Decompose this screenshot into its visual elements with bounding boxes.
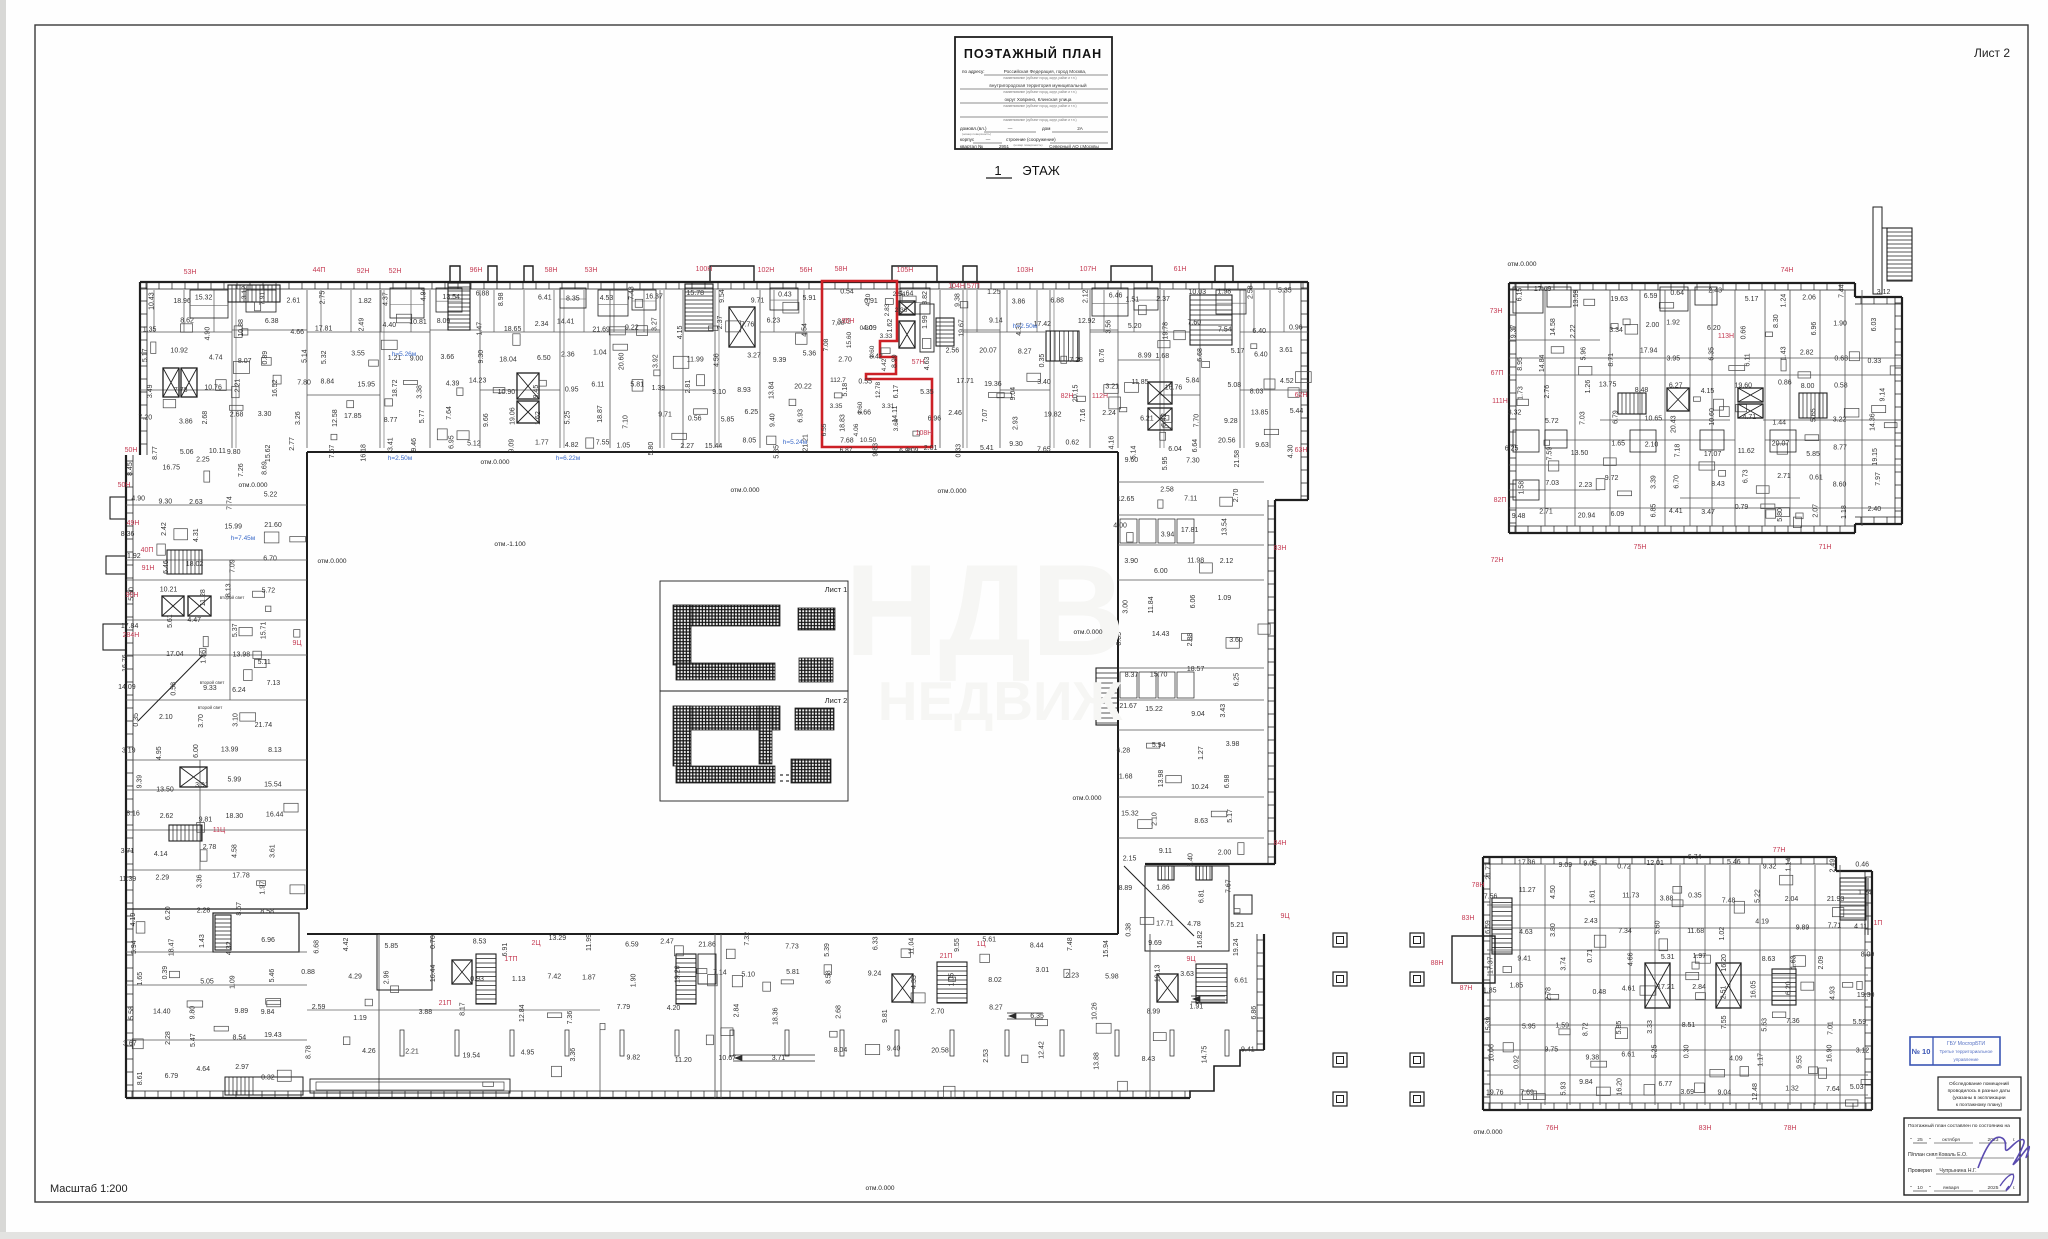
svg-text:2.10: 2.10 [1151, 812, 1158, 826]
svg-text:17.36: 17.36 [1518, 859, 1536, 866]
svg-text:1.87: 1.87 [582, 975, 596, 982]
svg-text:5.44: 5.44 [1290, 408, 1304, 415]
svg-text:3.35: 3.35 [830, 403, 843, 410]
svg-text:7.03: 7.03 [1580, 411, 1587, 425]
svg-text:6.96: 6.96 [928, 416, 942, 423]
svg-text:7.28: 7.28 [1069, 357, 1083, 364]
svg-text:3.61: 3.61 [1279, 347, 1293, 354]
svg-text:2.96: 2.96 [383, 970, 390, 984]
svg-text:0.89: 0.89 [262, 351, 269, 365]
svg-text:7.67: 7.67 [1226, 879, 1233, 893]
svg-text:внутригородская территория мун: внутригородская территория муниципальный [989, 82, 1087, 88]
svg-text:4.94: 4.94 [421, 287, 428, 301]
svg-text:8.77: 8.77 [1833, 445, 1847, 452]
svg-text:8.04: 8.04 [834, 1047, 848, 1054]
svg-text:8.62: 8.62 [180, 318, 194, 325]
svg-text:17.78: 17.78 [232, 872, 250, 879]
svg-text:21.77: 21.77 [1486, 862, 1493, 880]
svg-text:": " [1910, 1185, 1912, 1191]
svg-text:1.63: 1.63 [1791, 955, 1798, 969]
svg-text:9.81: 9.81 [882, 1009, 889, 1023]
svg-text:управление: управление [1953, 1057, 1979, 1062]
svg-text:10.60: 10.60 [1709, 408, 1716, 426]
svg-text:4.90: 4.90 [131, 496, 145, 503]
svg-text:14.43: 14.43 [1152, 631, 1170, 638]
svg-text:63Н: 63Н [1295, 447, 1308, 454]
svg-text:21.93: 21.93 [1827, 896, 1845, 903]
svg-text:5.59: 5.59 [1853, 1019, 1867, 1026]
svg-text:44П: 44П [313, 267, 326, 274]
svg-text:56Н: 56Н [800, 267, 813, 274]
svg-text:8.99: 8.99 [892, 354, 899, 368]
svg-text:0.35: 0.35 [1688, 893, 1702, 900]
svg-text:0.61: 0.61 [1809, 475, 1823, 482]
svg-text:8.99: 8.99 [1138, 353, 1152, 360]
svg-text:9.32: 9.32 [1763, 863, 1777, 870]
svg-text:21.74: 21.74 [255, 722, 273, 729]
svg-text:h=2.50м: h=2.50м [388, 455, 413, 462]
svg-text:20.22: 20.22 [794, 384, 812, 391]
svg-text:1.44: 1.44 [1772, 419, 1786, 426]
svg-text:2.36: 2.36 [895, 307, 908, 314]
svg-text:8.93: 8.93 [737, 387, 751, 394]
svg-text:9Ц: 9Ц [1186, 956, 1196, 963]
svg-text:5.85: 5.85 [773, 445, 780, 459]
svg-text:7.55: 7.55 [596, 440, 610, 447]
svg-text:8.51: 8.51 [1682, 1022, 1696, 1029]
svg-text:1.68: 1.68 [1119, 773, 1133, 780]
svg-text:2.15: 2.15 [1123, 856, 1137, 863]
svg-text:": " [1929, 1185, 1931, 1191]
svg-text:4.64: 4.64 [196, 1066, 210, 1073]
svg-text:15.94: 15.94 [1103, 940, 1110, 958]
svg-text:9.04: 9.04 [1010, 387, 1017, 401]
svg-text:3.19: 3.19 [122, 748, 136, 755]
svg-text:12.42: 12.42 [1038, 1041, 1045, 1059]
svg-text:19.78: 19.78 [1163, 322, 1170, 340]
svg-text:8.16: 8.16 [126, 811, 140, 818]
svg-text:0.35: 0.35 [1039, 354, 1046, 368]
svg-text:отм.0.000: отм.0.000 [239, 482, 268, 489]
svg-text:11.68: 11.68 [1687, 928, 1704, 935]
svg-text:6.55: 6.55 [821, 423, 828, 436]
svg-text:6.46: 6.46 [1109, 293, 1123, 300]
svg-text:91Н: 91Н [142, 565, 155, 572]
svg-text:6.66: 6.66 [857, 410, 871, 417]
svg-text:1Ц: 1Ц [976, 941, 986, 948]
svg-text:1.65: 1.65 [137, 972, 144, 986]
svg-text:3.26: 3.26 [295, 411, 302, 425]
svg-text:ПОЭТАЖНЫЙ ПЛАН: ПОЭТАЖНЫЙ ПЛАН [964, 46, 1102, 61]
svg-text:отм.0.000: отм.0.000 [481, 459, 510, 466]
svg-text:4.00: 4.00 [1113, 522, 1127, 529]
svg-text:h=2.50м: h=2.50м [1013, 323, 1038, 330]
svg-text:1.24: 1.24 [1781, 294, 1788, 308]
svg-text:6.93: 6.93 [797, 409, 804, 423]
svg-text:16.18: 16.18 [361, 444, 368, 462]
svg-text:7.57: 7.57 [329, 445, 336, 459]
svg-text:2.47: 2.47 [660, 939, 674, 946]
svg-text:17.69: 17.69 [1534, 286, 1552, 293]
svg-text:": " [1910, 1137, 1912, 1143]
svg-text:7.78: 7.78 [174, 387, 188, 394]
svg-text:3.32: 3.32 [1508, 410, 1522, 417]
svg-text:0.88: 0.88 [301, 969, 315, 976]
svg-text:1.25: 1.25 [987, 289, 1001, 296]
svg-text:h=5.26м: h=5.26м [392, 351, 417, 358]
svg-text:10.26: 10.26 [1091, 1002, 1098, 1020]
svg-text:1.82: 1.82 [358, 298, 372, 305]
svg-text:9Ц: 9Ц [292, 640, 302, 647]
svg-text:6.06: 6.06 [1190, 595, 1197, 609]
svg-text:6.23: 6.23 [767, 318, 781, 325]
svg-text:10.21: 10.21 [160, 586, 178, 593]
svg-text:13.98: 13.98 [233, 652, 251, 659]
svg-text:": " [1929, 1137, 1931, 1143]
svg-text:67П: 67П [1491, 370, 1504, 377]
svg-text:10.03: 10.03 [1189, 289, 1207, 296]
svg-text:11.85: 11.85 [1132, 379, 1149, 386]
svg-text:4.31: 4.31 [193, 528, 200, 542]
svg-text:6.21: 6.21 [1140, 415, 1154, 422]
svg-text:0.32: 0.32 [261, 1074, 275, 1081]
svg-text:9.84: 9.84 [261, 1009, 275, 1016]
svg-text:5.31: 5.31 [1661, 954, 1675, 961]
svg-text:5.80: 5.80 [1777, 508, 1784, 522]
svg-text:9.60: 9.60 [1125, 457, 1139, 464]
svg-text:4.14: 4.14 [154, 851, 168, 858]
svg-text:2.28: 2.28 [165, 1031, 172, 1045]
svg-text:6.61: 6.61 [1621, 1051, 1635, 1058]
svg-text:0.58: 0.58 [170, 682, 177, 696]
svg-text:Поэтажный план составлен по со: Поэтажный план составлен по состоянию на [1908, 1122, 2010, 1129]
svg-text:5.35: 5.35 [920, 389, 934, 396]
svg-text:5.96: 5.96 [1581, 347, 1588, 361]
svg-text:8.13: 8.13 [225, 583, 232, 597]
svg-text:9.30: 9.30 [478, 350, 485, 364]
svg-text:7.44: 7.44 [1838, 284, 1845, 298]
svg-text:3.40: 3.40 [1037, 379, 1051, 386]
svg-text:2.51: 2.51 [1721, 985, 1728, 999]
svg-text:наименование (субъект город, о: наименование (субъект город, округ, райо… [1003, 90, 1076, 94]
svg-text:1.51: 1.51 [1125, 296, 1139, 303]
svg-text:3.21: 3.21 [1105, 384, 1119, 391]
svg-text:3.47: 3.47 [1701, 509, 1715, 516]
svg-text:20.15: 20.15 [1073, 384, 1080, 402]
svg-text:12.01: 12.01 [1646, 860, 1664, 867]
svg-text:90Н: 90Н [126, 592, 139, 599]
svg-text:2.93: 2.93 [1013, 416, 1020, 430]
svg-text:16.76: 16.76 [122, 654, 129, 672]
svg-text:Обследование помещений: Обследование помещений [1949, 1080, 2009, 1087]
svg-text:11.99: 11.99 [586, 934, 593, 951]
svg-text:наименование (субъект город, о: наименование (субъект город, округ, райо… [1003, 118, 1076, 122]
svg-text:5.05: 5.05 [200, 979, 214, 986]
svg-text:4.47: 4.47 [187, 617, 201, 624]
svg-text:2.61: 2.61 [286, 298, 300, 305]
svg-text:8.05: 8.05 [742, 438, 756, 445]
svg-text:0.54: 0.54 [840, 288, 854, 295]
svg-text:13.29: 13.29 [549, 935, 567, 942]
svg-text:25: 25 [1917, 1137, 1923, 1143]
svg-text:1.92: 1.92 [127, 553, 141, 560]
svg-text:2.12: 2.12 [1220, 558, 1234, 565]
svg-text:7.10: 7.10 [622, 415, 629, 429]
svg-text:2.59: 2.59 [312, 1004, 326, 1011]
svg-text:7.55: 7.55 [1721, 1015, 1728, 1029]
svg-text:октября: октября [1942, 1137, 1960, 1143]
svg-text:7.74: 7.74 [226, 496, 233, 510]
svg-text:2.34: 2.34 [535, 321, 549, 328]
svg-text:1.59: 1.59 [1555, 1022, 1569, 1029]
svg-text:18.30: 18.30 [226, 813, 244, 820]
svg-text:7.01: 7.01 [1828, 1021, 1835, 1035]
svg-text:19.82: 19.82 [1044, 412, 1062, 419]
svg-text:1.39: 1.39 [652, 385, 666, 392]
svg-text:5.85: 5.85 [1806, 451, 1820, 458]
svg-text:6.00: 6.00 [193, 744, 200, 758]
svg-text:1.18: 1.18 [1841, 505, 1848, 519]
svg-text:17.81: 17.81 [1181, 527, 1199, 534]
svg-text:6.00: 6.00 [1154, 568, 1168, 575]
svg-text:0.91: 0.91 [864, 298, 878, 305]
svg-text:по адресу:: по адресу: [962, 69, 985, 74]
svg-text:9.41: 9.41 [1517, 955, 1531, 962]
svg-text:14.09: 14.09 [118, 684, 136, 691]
svg-text:3.71: 3.71 [121, 848, 135, 855]
svg-text:17.37: 17.37 [1488, 956, 1495, 974]
svg-text:дом: дом [1042, 126, 1050, 131]
svg-text:3.63: 3.63 [1180, 971, 1194, 978]
svg-text:5.95: 5.95 [1162, 456, 1169, 470]
svg-text:0.71: 0.71 [1587, 949, 1594, 963]
svg-text:7.48: 7.48 [1722, 897, 1736, 904]
svg-text:18.02: 18.02 [186, 561, 204, 568]
svg-text:1.47: 1.47 [476, 322, 483, 336]
svg-text:6.96: 6.96 [261, 937, 275, 944]
svg-text:6.27: 6.27 [1669, 382, 1683, 389]
svg-text:6.59: 6.59 [1644, 293, 1658, 300]
svg-text:19.67: 19.67 [958, 319, 965, 337]
svg-text:наименование (субъект город, о: наименование (субъект город, округ, райо… [1003, 76, 1076, 80]
svg-text:9.72: 9.72 [1605, 475, 1619, 482]
svg-text:5.94: 5.94 [131, 940, 138, 954]
svg-text:9.09: 9.09 [1558, 862, 1572, 869]
svg-text:11Ц: 11Ц [213, 827, 226, 834]
svg-text:21.86: 21.86 [698, 941, 716, 948]
svg-text:5.25: 5.25 [1652, 1044, 1659, 1058]
svg-text:5.10: 5.10 [741, 972, 755, 979]
svg-text:3.66: 3.66 [440, 354, 454, 361]
svg-text:7.20: 7.20 [138, 414, 152, 421]
svg-text:4.50: 4.50 [1550, 885, 1557, 899]
svg-text:3.86: 3.86 [1012, 298, 1026, 305]
svg-text:4.19: 4.19 [1755, 918, 1769, 925]
svg-text:2.40: 2.40 [1868, 506, 1882, 513]
svg-text:9.41: 9.41 [1241, 1047, 1255, 1054]
svg-text:9.55: 9.55 [1796, 1055, 1803, 1069]
svg-text:8.09: 8.09 [437, 318, 451, 325]
svg-text:9.40: 9.40 [769, 413, 776, 427]
svg-text:21.60: 21.60 [264, 522, 282, 529]
svg-text:1.13: 1.13 [512, 976, 526, 983]
svg-text:6.20: 6.20 [1707, 325, 1721, 332]
svg-text:4.32: 4.32 [226, 941, 233, 955]
svg-text:12.48: 12.48 [1752, 1083, 1759, 1101]
svg-text:5.46: 5.46 [269, 969, 276, 983]
svg-text:104Н 57П: 104Н 57П [948, 283, 980, 290]
svg-text:2.46: 2.46 [948, 410, 962, 417]
svg-text:домовл.(вл.): домовл.(вл.) [960, 126, 987, 131]
svg-text:2.29: 2.29 [155, 875, 169, 882]
svg-text:4.15: 4.15 [1701, 388, 1715, 395]
svg-text:50Н: 50Н [125, 447, 138, 454]
svg-text:8.63: 8.63 [1194, 818, 1208, 825]
svg-text:10.92: 10.92 [170, 348, 188, 355]
svg-text:h=6.22м: h=6.22м [556, 455, 581, 462]
svg-text:5.20: 5.20 [1128, 323, 1142, 330]
svg-text:1.99: 1.99 [922, 315, 929, 329]
svg-text:5.84: 5.84 [1186, 378, 1200, 385]
svg-text:16.44: 16.44 [266, 811, 284, 818]
svg-text:0.48: 0.48 [1592, 989, 1606, 996]
svg-text:4.11: 4.11 [1854, 924, 1867, 931]
svg-text:0.33: 0.33 [956, 444, 963, 458]
svg-text:14.58: 14.58 [1550, 318, 1557, 336]
svg-text:9.09: 9.09 [508, 439, 515, 453]
svg-text:6.40: 6.40 [1187, 853, 1194, 867]
svg-text:5.22: 5.22 [264, 491, 278, 498]
svg-text:1.26: 1.26 [1585, 380, 1592, 394]
svg-text:74Н: 74Н [1781, 267, 1794, 274]
svg-text:7.73: 7.73 [785, 944, 799, 951]
svg-text:5.08: 5.08 [1227, 382, 1241, 389]
svg-text:1П: 1П [1874, 920, 1883, 927]
svg-text:отм.0.000: отм.0.000 [938, 488, 967, 495]
svg-text:Лист 2: Лист 2 [1974, 46, 2010, 60]
svg-text:h=7.45м: h=7.45м [231, 535, 256, 542]
svg-text:3.22: 3.22 [1833, 416, 1847, 423]
svg-text:НДВ: НДВ [845, 537, 1125, 683]
svg-text:13.85: 13.85 [1251, 409, 1269, 416]
svg-text:2.06: 2.06 [1802, 295, 1816, 302]
svg-text:1.35: 1.35 [143, 326, 157, 333]
svg-text:18.83: 18.83 [839, 414, 846, 432]
svg-text:8.07: 8.07 [238, 358, 252, 365]
svg-text:17.84: 17.84 [121, 623, 139, 630]
svg-text:2.83: 2.83 [884, 303, 891, 316]
svg-text:8.58: 8.58 [260, 909, 274, 916]
svg-text:8.42: 8.42 [869, 354, 883, 361]
svg-text:проводилось в разные даты: проводилось в разные даты [1948, 1089, 2011, 1094]
svg-text:9.39: 9.39 [137, 775, 144, 789]
svg-text:3.41: 3.41 [388, 437, 395, 451]
svg-text:8.43: 8.43 [1711, 481, 1725, 488]
svg-text:0.38: 0.38 [1126, 923, 1133, 937]
svg-text:15.32: 15.32 [1121, 811, 1139, 818]
svg-text:5.18: 5.18 [842, 383, 849, 397]
svg-text:1.97: 1.97 [1693, 953, 1707, 960]
svg-text:6.42: 6.42 [1161, 413, 1168, 427]
svg-text:1.04: 1.04 [593, 350, 607, 357]
svg-text:1.17: 1.17 [1757, 1053, 1764, 1067]
svg-text:4.71: 4.71 [1742, 414, 1756, 421]
svg-text:13.50: 13.50 [156, 787, 174, 794]
svg-text:2.10: 2.10 [1645, 441, 1659, 448]
svg-text:5.32: 5.32 [321, 350, 328, 364]
svg-text:7.08: 7.08 [823, 338, 830, 351]
svg-text:6.15: 6.15 [1517, 288, 1524, 302]
svg-text:9.63: 9.63 [1255, 442, 1269, 449]
svg-text:1.09: 1.09 [1218, 595, 1232, 602]
svg-text:6.79: 6.79 [1613, 410, 1620, 424]
svg-text:1.19: 1.19 [353, 1015, 367, 1022]
svg-text:1.68: 1.68 [1155, 353, 1169, 360]
svg-text:4.41: 4.41 [1669, 508, 1683, 515]
svg-text:9.55: 9.55 [954, 938, 961, 952]
svg-text:к поэтажному плану): к поэтажному плану) [1956, 1102, 2003, 1108]
svg-text:53Н: 53Н [184, 269, 197, 276]
svg-text:3.36: 3.36 [570, 1048, 577, 1062]
svg-text:6.20: 6.20 [1785, 981, 1792, 995]
svg-text:4.63: 4.63 [924, 356, 931, 370]
svg-text:2.58: 2.58 [1160, 487, 1174, 494]
svg-text:2.76: 2.76 [1544, 385, 1551, 399]
svg-text:Проверил: Проверил [1908, 1168, 1932, 1174]
svg-text:ЭТАЖ: ЭТАЖ [1022, 163, 1060, 178]
svg-text:12.78: 12.78 [875, 381, 882, 398]
svg-text:4.82: 4.82 [565, 442, 579, 449]
svg-text:2.63: 2.63 [189, 499, 203, 506]
svg-text:7.07: 7.07 [982, 409, 989, 423]
svg-text:1.92: 1.92 [1666, 319, 1680, 326]
svg-text:2.49: 2.49 [1830, 859, 1837, 873]
svg-text:5.93: 5.93 [1560, 1082, 1567, 1096]
svg-text:21П: 21П [940, 953, 953, 960]
svg-text:12.84: 12.84 [519, 1004, 526, 1022]
svg-text:8.69: 8.69 [261, 461, 268, 475]
svg-text:8.58: 8.58 [826, 970, 833, 984]
svg-text:16.44: 16.44 [430, 965, 437, 983]
svg-text:5.36: 5.36 [803, 350, 817, 357]
svg-text:11.28: 11.28 [200, 589, 207, 606]
svg-text:3.12: 3.12 [242, 286, 249, 300]
svg-text:1.24: 1.24 [1858, 890, 1872, 897]
svg-text:19.24: 19.24 [1233, 938, 1240, 956]
svg-text:1.09: 1.09 [230, 975, 237, 989]
svg-text:9.14: 9.14 [1879, 388, 1886, 402]
svg-text:5.85: 5.85 [384, 943, 398, 950]
svg-text:19.26: 19.26 [675, 965, 682, 983]
svg-text:0.30: 0.30 [1684, 1044, 1691, 1058]
svg-text:82Н: 82Н [1061, 393, 1074, 400]
svg-text:58Н: 58Н [545, 267, 558, 274]
svg-text:103Н: 103Н [1017, 267, 1034, 274]
svg-text:17.85: 17.85 [344, 413, 362, 420]
svg-text:9.05: 9.05 [1583, 861, 1597, 868]
svg-text:4.58: 4.58 [231, 844, 238, 858]
svg-text:№ 10: № 10 [1912, 1047, 1931, 1056]
svg-text:13.59: 13.59 [1573, 290, 1580, 308]
svg-text:9Ц: 9Ц [1280, 913, 1290, 920]
svg-text:7.48: 7.48 [629, 286, 636, 300]
svg-text:112Н: 112Н [1092, 393, 1108, 400]
svg-text:2.43: 2.43 [1584, 918, 1598, 925]
svg-text:4.40: 4.40 [382, 322, 396, 329]
svg-text:2.78: 2.78 [203, 844, 217, 851]
svg-text:50Н: 50Н [118, 482, 131, 489]
svg-text:2.75: 2.75 [319, 291, 326, 305]
